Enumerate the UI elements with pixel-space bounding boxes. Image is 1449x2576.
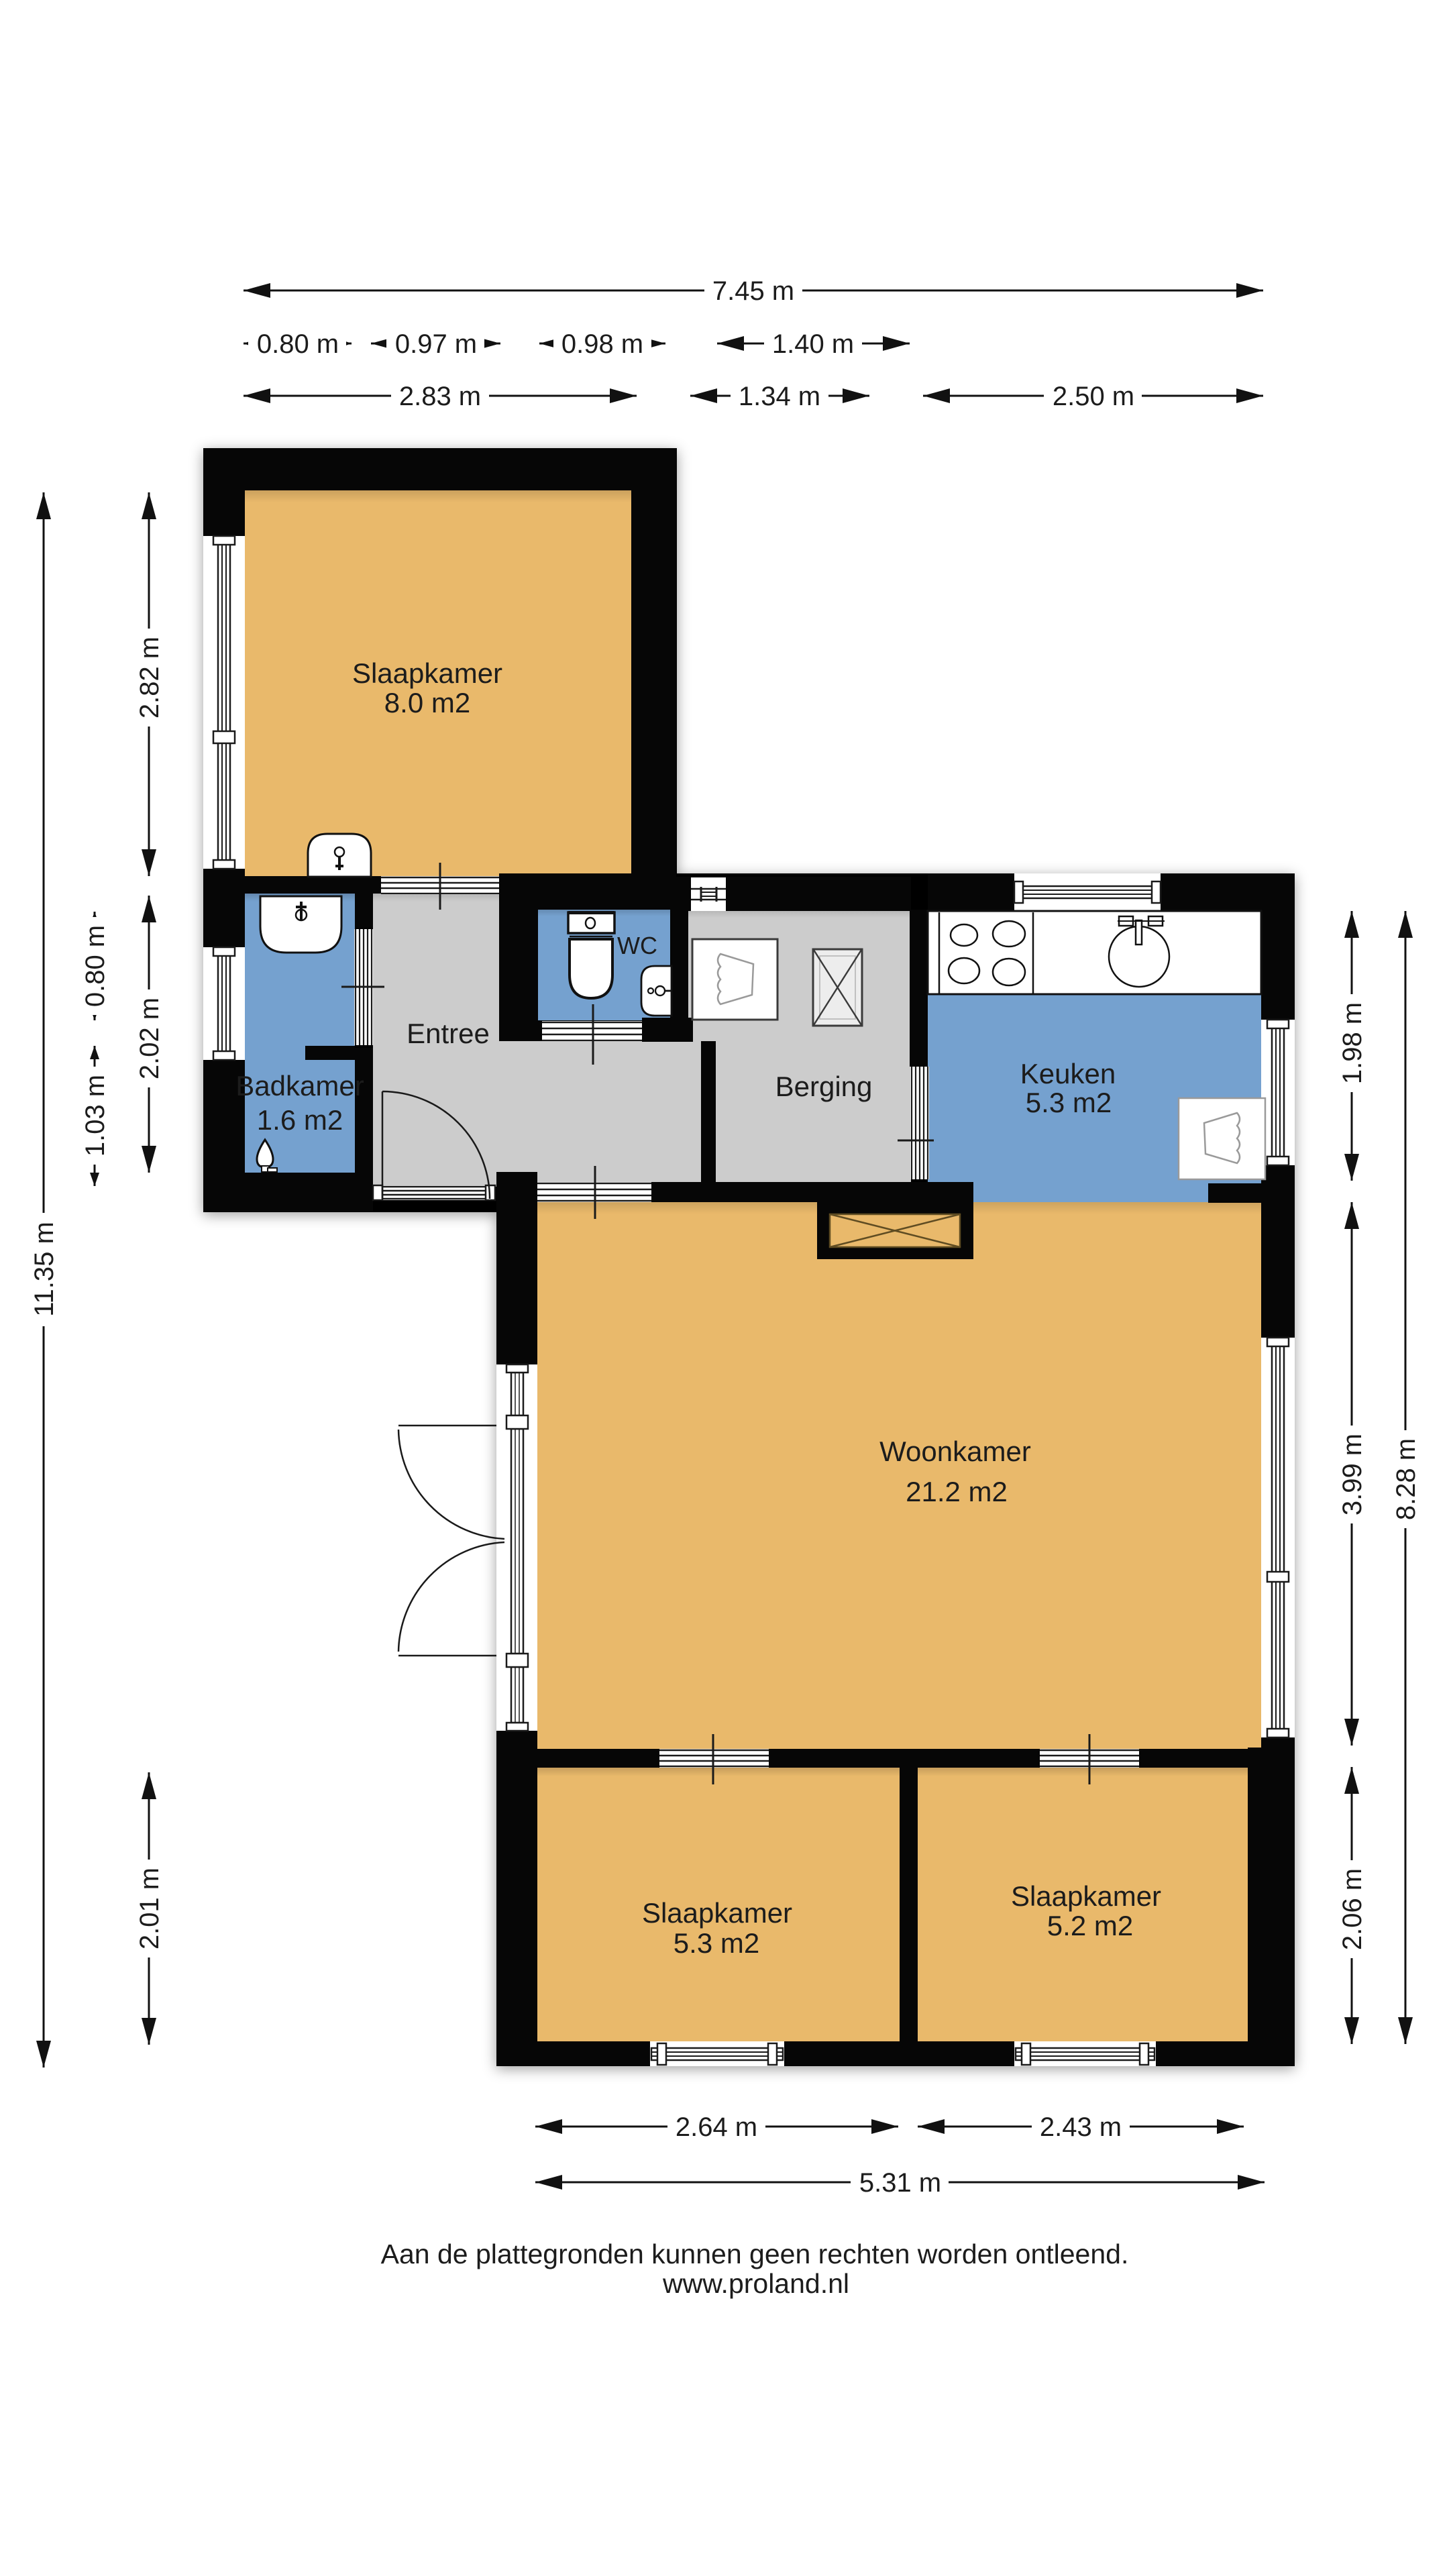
svg-text:2.01 m: 2.01 m: [135, 1868, 164, 1949]
svg-text:Entree: Entree: [407, 1018, 490, 1049]
svg-text:5.3 m2: 5.3 m2: [1026, 1087, 1112, 1118]
svg-text:0.80 m: 0.80 m: [80, 925, 110, 1007]
svg-text:5.31 m: 5.31 m: [859, 2168, 941, 2198]
svg-text:8.0 m2: 8.0 m2: [384, 687, 470, 718]
svg-text:www.proland.nl: www.proland.nl: [662, 2268, 849, 2299]
svg-text:2.50 m: 2.50 m: [1053, 382, 1134, 411]
svg-text:1.03 m: 1.03 m: [80, 1075, 110, 1157]
svg-text:Woonkamer: Woonkamer: [879, 1436, 1031, 1467]
svg-text:11.35 m: 11.35 m: [30, 1222, 59, 1317]
svg-text:21.2 m2: 21.2 m2: [906, 1476, 1008, 1507]
svg-text:2.82 m: 2.82 m: [135, 637, 164, 718]
svg-text:1.98 m: 1.98 m: [1338, 1002, 1367, 1084]
svg-text:1.40 m: 1.40 m: [772, 329, 854, 359]
svg-text:3.99 m: 3.99 m: [1338, 1434, 1367, 1515]
svg-text:Badkamer: Badkamer: [235, 1070, 364, 1102]
svg-text:2.06 m: 2.06 m: [1338, 1868, 1367, 1950]
svg-text:8.28 m: 8.28 m: [1391, 1438, 1421, 1520]
svg-text:2.83 m: 2.83 m: [399, 382, 481, 411]
svg-text:7.45 m: 7.45 m: [712, 276, 794, 306]
svg-text:1.6 m2: 1.6 m2: [257, 1104, 343, 1136]
svg-text:Slaapkamer: Slaapkamer: [642, 1897, 792, 1929]
svg-text:0.80 m: 0.80 m: [257, 329, 339, 359]
svg-text:0.98 m: 0.98 m: [561, 329, 643, 359]
svg-text:5.3 m2: 5.3 m2: [674, 1927, 759, 1959]
svg-text:Slaapkamer: Slaapkamer: [1011, 1880, 1161, 1912]
svg-text:0.97 m: 0.97 m: [395, 329, 477, 359]
svg-text:Keuken: Keuken: [1020, 1058, 1116, 1089]
svg-text:Slaapkamer: Slaapkamer: [352, 657, 502, 689]
svg-text:Berging: Berging: [775, 1071, 873, 1102]
svg-text:2.43 m: 2.43 m: [1040, 2112, 1122, 2142]
svg-text:5.2 m2: 5.2 m2: [1047, 1910, 1133, 1941]
svg-text:Aan de plattegronden kunnen ge: Aan de plattegronden kunnen geen rechten…: [381, 2239, 1129, 2269]
svg-text:2.02 m: 2.02 m: [135, 998, 164, 1079]
svg-text:WC: WC: [617, 932, 657, 959]
svg-text:2.64 m: 2.64 m: [676, 2112, 757, 2142]
svg-text:1.34 m: 1.34 m: [739, 382, 820, 411]
